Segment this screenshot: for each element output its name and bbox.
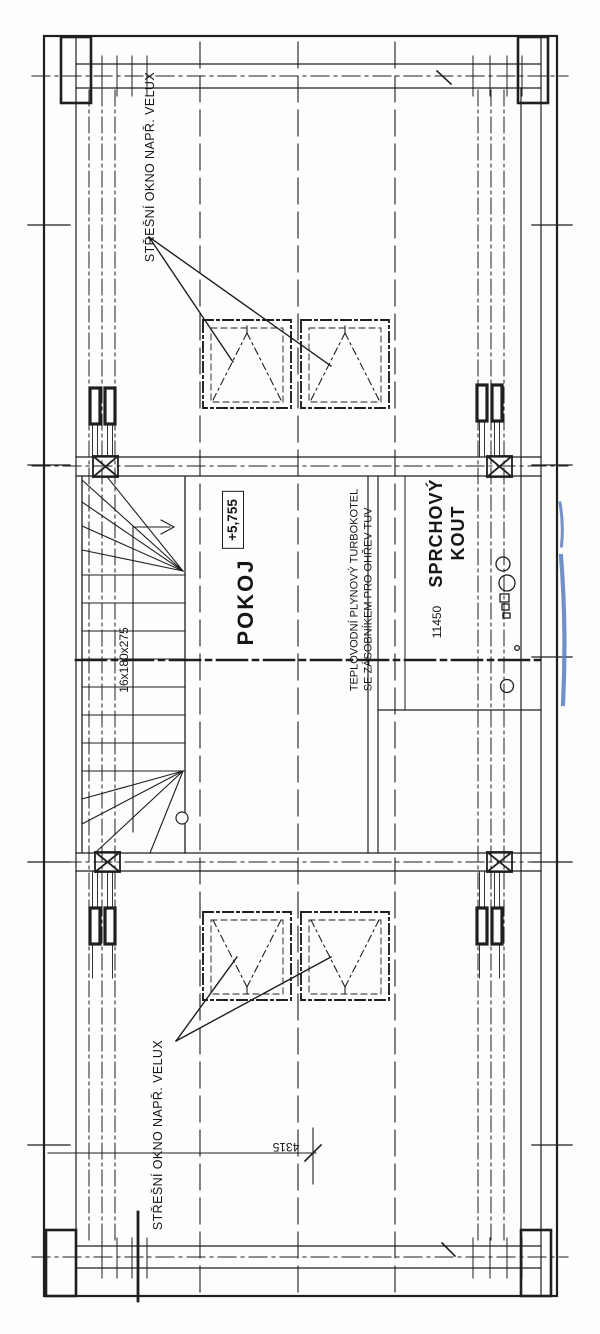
shower-label-line2: KOUT (447, 478, 469, 587)
floorplan-linework (0, 0, 600, 1334)
dimension-11450-label: 11450 (430, 606, 444, 638)
leader-lines (138, 237, 331, 1301)
roof-windows-bottom (203, 912, 389, 1000)
roof-window-label-bottom: STŘEŠNÍ OKNO NAPŘ. VELUX (151, 1040, 165, 1230)
interior-wall-lower (32, 852, 568, 872)
border-section-ticks (28, 225, 572, 1145)
elevation-marker: +5,755 (224, 491, 242, 549)
room-label-shower: SPRCHOVÝ KOUT (425, 478, 469, 587)
blue-pen-mark (560, 503, 564, 704)
bottom-wall-band (32, 1238, 568, 1278)
staircase (82, 477, 188, 853)
roof-windows-top (203, 320, 389, 408)
room-label-pokoj: POKOJ (233, 558, 259, 645)
stair-dimension-label: 16x180x275 (117, 627, 131, 692)
plumbing-fixtures (496, 557, 519, 693)
dimension-4315-label: 4315 (273, 1140, 300, 1154)
shower-label-line1: SPRCHOVÝ (425, 478, 447, 587)
roof-window (301, 320, 389, 408)
top-wall-band (32, 56, 568, 96)
stair-start-marker (176, 812, 188, 824)
roof-window-label-top: STŘEŠNÍ OKNO NAPŘ. VELUX (143, 72, 157, 262)
knee-wall-posts (90, 385, 502, 944)
roof-window (203, 320, 291, 408)
roof-window (301, 912, 389, 1000)
interior-wall-upper (32, 456, 568, 477)
boiler-note-line2: SE ZÁSOBNÍKEM PRO OHŘEV TUV (362, 489, 376, 692)
boiler-note: TEPLOVODNÍ PLYNOVÝ TURBOKOTEL SE ZÁSOBNÍ… (349, 489, 376, 692)
elevation-value: +5,755 (222, 491, 244, 549)
boiler-note-line1: TEPLOVODNÍ PLYNOVÝ TURBOKOTEL (349, 489, 363, 692)
floorplan-sheet: STŘEŠNÍ OKNO NAPŘ. VELUX +5,755 POKOJ TE… (0, 0, 600, 1334)
